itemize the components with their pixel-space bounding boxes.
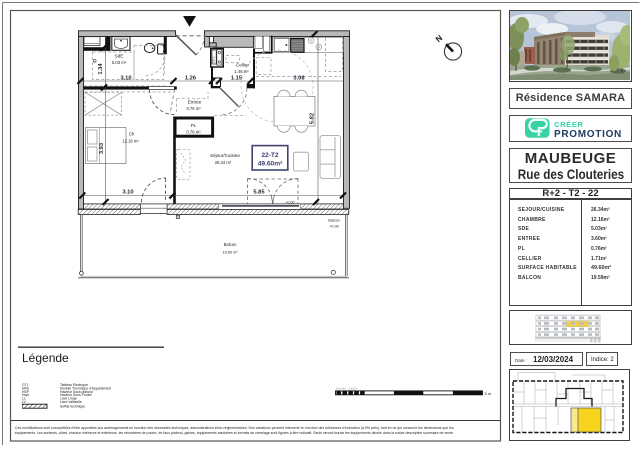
svg-text:CRÉER: CRÉER (554, 120, 584, 129)
svg-text:1.26: 1.26 (185, 76, 197, 82)
svg-text:26.34 m²: 26.34 m² (215, 160, 232, 165)
svg-text:3.10: 3.10 (120, 76, 131, 82)
svg-text:5.85: 5.85 (253, 190, 265, 196)
svg-text:19.59 m²: 19.59 m² (223, 251, 239, 255)
svg-text:SdE: SdE (115, 54, 124, 59)
svg-text:Balcon: Balcon (224, 242, 237, 247)
svg-text:3.76 m²: 3.76 m² (186, 106, 201, 111)
svg-text:Balcon: Balcon (328, 219, 340, 223)
svg-text:1.34: 1.34 (98, 63, 104, 75)
svg-text:5.03 m²: 5.03 m² (112, 60, 127, 65)
svg-text:+0.00: +0.00 (329, 225, 339, 229)
svg-text:PL: PL (191, 123, 197, 128)
svg-text:1.46 m²: 1.46 m² (234, 69, 249, 74)
svg-text:PROMOTION: PROMOTION (554, 129, 622, 140)
svg-text:3.10: 3.10 (122, 190, 133, 196)
svg-text:Echelle : 1/100e: Echelle : 1/100e (336, 386, 358, 390)
svg-text:LV: LV (22, 400, 27, 404)
svg-text:49.60m²: 49.60m² (258, 161, 283, 168)
svg-text:Entrée: Entrée (188, 100, 202, 105)
svg-text:3.93: 3.93 (99, 142, 105, 154)
svg-text:Lave Vaisselle: Lave Vaisselle (60, 400, 82, 404)
svg-text:Séjour/Cuisine: Séjour/Cuisine (210, 153, 240, 158)
svg-text:0.76 m²: 0.76 m² (186, 130, 201, 135)
svg-text:M: M (271, 198, 274, 202)
svg-text:3.08: 3.08 (293, 76, 305, 82)
svg-text:Soffite technique: Soffite technique (60, 404, 85, 408)
svg-text:Cellier: Cellier (236, 63, 249, 68)
svg-text:+0.00: +0.00 (285, 201, 294, 205)
svg-text:GTL: GTL (211, 56, 215, 62)
svg-text:22-T2: 22-T2 (261, 152, 279, 159)
svg-text:Ch: Ch (129, 132, 135, 137)
svg-text:1.15: 1.15 (231, 76, 243, 82)
svg-text:N: N (434, 33, 444, 44)
svg-text:12.16 m²: 12.16 m² (122, 139, 139, 144)
svg-text:5 m: 5 m (485, 391, 492, 396)
svg-text:5.82: 5.82 (310, 113, 316, 124)
